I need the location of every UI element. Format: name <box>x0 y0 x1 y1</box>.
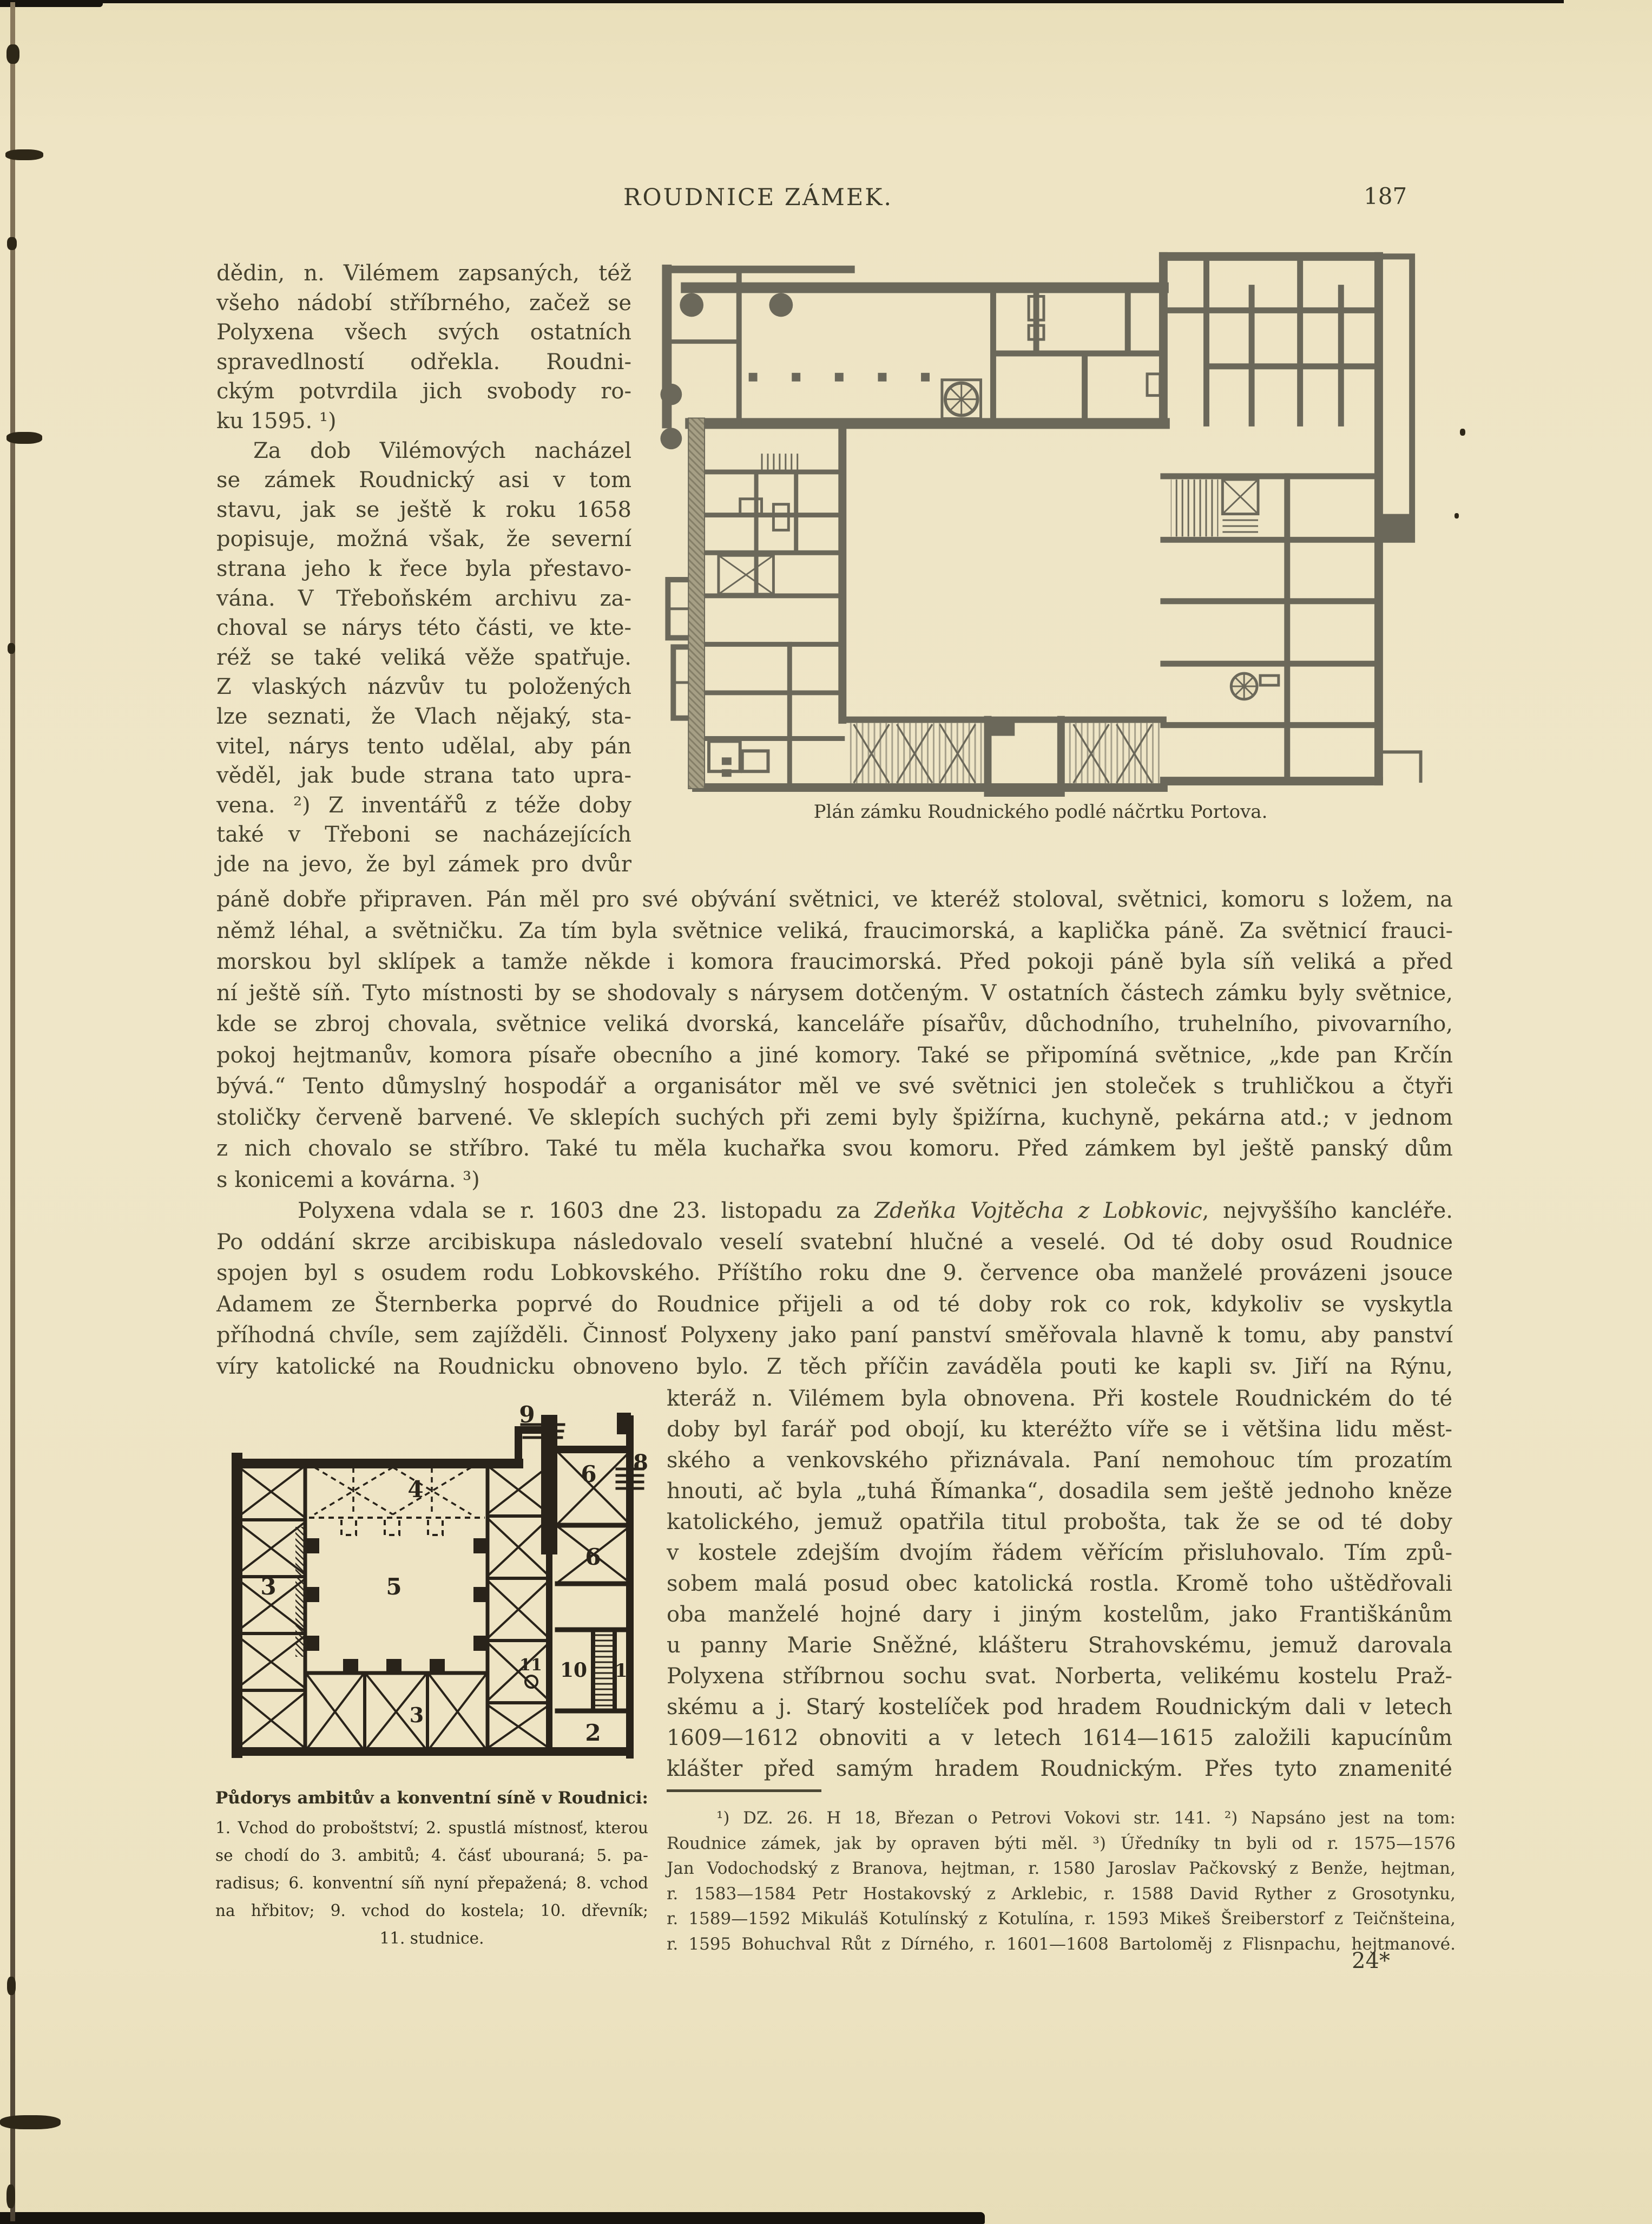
binding-mark <box>8 643 15 654</box>
text-line: Po oddání skrze arcibiskupa následovalo … <box>216 1227 1453 1258</box>
binding-mark <box>6 2184 15 2208</box>
legend-line: na hřbitov; 9. vchod do kostela; 10. dře… <box>215 1897 648 1925</box>
room-number-label: 5 <box>386 1573 402 1600</box>
room-number-label: 1 <box>615 1660 628 1682</box>
main-text-block: páně dobře připraven. Pán měl pro své ob… <box>216 884 1453 1382</box>
room-number-label: 11 <box>519 1656 542 1675</box>
text-line: ského a venkovského přiznávala. Paní nem… <box>667 1445 1452 1476</box>
text-line: kteráž n. Vilémem byla obnovena. Při kos… <box>667 1383 1452 1414</box>
text-line: Polyxena stříbrnou sochu svat. Norberta,… <box>667 1661 1452 1692</box>
text-line: víry katolické na Roudnicku obnoveno byl… <box>216 1352 1453 1383</box>
text-line: spojen byl s osudem rodu Lobkovského. Př… <box>216 1258 1453 1289</box>
page-edge-bottom <box>0 2212 985 2224</box>
text-line: doby byl farář pod obojí, ku kteréžto ví… <box>667 1414 1452 1445</box>
text-line: bývá.“ Tento důmyslný hospodář a organis… <box>216 1071 1453 1103</box>
text-line: réž se také veliká věže spatřuje. <box>216 643 631 673</box>
text-line: jde na jevo, že byl zámek pro dvůr <box>216 850 631 880</box>
footnote-line: Jan Vodochodský z Branova, hejtman, r. 1… <box>667 1856 1456 1881</box>
text-line: popisuje, možná však, že severní <box>216 524 631 554</box>
plan-walls <box>667 257 1420 795</box>
legend-line: se chodí do 3. ambitů; 4. čásť ubouraná;… <box>215 1842 648 1869</box>
page-number: 187 <box>1364 183 1407 209</box>
room-number-label: 4 <box>407 1476 423 1503</box>
left-text-column: dědin, n. Vilémem zapsaných, téžvšeho ná… <box>216 259 631 879</box>
text-line: ní ještě síň. Tyto místnosti by se shodo… <box>216 978 1453 1009</box>
text-line: příhodná chvíle, sem zajížděli. Činnosť … <box>216 1320 1453 1352</box>
castle-plan-drawing <box>656 245 1425 797</box>
text-line: ckým potvrdila jich svobody ro- <box>216 377 631 406</box>
footnote-line: ¹) DZ. 26. H 18, Březan o Petrovi Vokovi… <box>667 1806 1456 1831</box>
demolished-part-dashed <box>309 1467 485 1535</box>
text-line: Polyxena všech svých ostatních <box>216 318 631 347</box>
text-line: Za dob Vilémových nacházel <box>216 436 631 466</box>
text-line: stoličky červeně barvené. Ve sklepích su… <box>216 1103 1453 1134</box>
top-plan-caption: Plán zámku Roudnického podlé náčrtku Por… <box>656 801 1425 823</box>
binding-mark <box>6 432 42 444</box>
room-number-label: 9 <box>519 1401 535 1428</box>
text-line-wedding: Polyxena vdala se r. 1603 dne 23. listop… <box>216 1196 1453 1227</box>
cloister-plan-drawing: 9 4 6 8 6 3 5 10 11 1 3 2 <box>214 1400 647 1768</box>
cloister-hatching <box>295 1527 614 1710</box>
binding-gutter-line <box>10 2 15 2221</box>
text-line: katolického, jemuž opatřila titul proboš… <box>667 1507 1452 1538</box>
ink-speck <box>1460 429 1465 436</box>
text-line: kde se zbroj chovala, světnice veliká dv… <box>216 1009 1453 1040</box>
room-number-label: 3 <box>410 1703 424 1727</box>
wedding-line-post: , nejvyššího kancléře. <box>1202 1198 1453 1223</box>
text-line: pokoj hejtmanův, komora písaře obecního … <box>216 1040 1453 1072</box>
text-line: v kostele zdejším dvojím řádem věřícím p… <box>667 1538 1452 1569</box>
binding-mark <box>5 149 43 160</box>
sheet-signature: 24* <box>1352 1949 1390 1973</box>
page-edge-top-corner <box>0 0 103 7</box>
text-line: věděl, jak bude strana tato upra- <box>216 761 631 791</box>
footnote-line: Roudnice zámek, jak by opraven býti měl.… <box>667 1831 1456 1856</box>
text-line: vena. ²) Z inventářů z téže doby <box>216 791 631 821</box>
text-line: sobem malá posud obec katolická rostla. … <box>667 1569 1452 1599</box>
bottom-plan-legend: 1. Vchod do proboštství; 2. spustlá míst… <box>215 1814 648 1952</box>
paragraph-continuation: páně dobře připraven. Pán měl pro své ob… <box>216 884 1453 1196</box>
room-number-label: 2 <box>585 1720 601 1746</box>
footnote-line: r. 1589—1592 Mikuláš Kotulínský z Kotulí… <box>667 1906 1456 1932</box>
room-number-label: 3 <box>260 1573 276 1600</box>
footnote-separator-rule <box>667 1789 821 1792</box>
text-line: Z vlaských názvův tu položených <box>216 672 631 702</box>
scanned-book-page: { "header": { "title": "ROUDNICE ZÁMEK."… <box>0 0 1652 2224</box>
text-line: se zámek Roudnický asi v tom <box>216 465 631 495</box>
text-line: také v Třeboni se nacházejících <box>216 820 631 850</box>
castle-plan-figure <box>656 245 1425 799</box>
room-number-label: 6 <box>581 1461 596 1487</box>
binding-mark <box>7 1977 16 1995</box>
text-line: páně dobře připraven. Pán měl pro své ob… <box>216 884 1453 916</box>
running-header-title: ROUDNICE ZÁMEK. <box>623 184 893 211</box>
text-line: dědin, n. Vilémem zapsaných, též <box>216 259 631 288</box>
right-text-column: kteráž n. Vilémem byla obnovena. Při kos… <box>667 1383 1452 1785</box>
text-line: vána. V Třeboňském archivu za- <box>216 584 631 614</box>
text-line: choval se nárys této části, ve kte- <box>216 613 631 643</box>
text-line: klášter před samým hradem Roudnickým. Př… <box>667 1754 1452 1785</box>
footnote-line: r. 1595 Bohuchval Růt z Dírného, r. 1601… <box>667 1932 1456 1957</box>
text-line: lze seznati, že Vlach nějaký, sta- <box>216 702 631 732</box>
text-line: vitel, nárys tento udělal, aby pán <box>216 732 631 762</box>
wedding-line-pre: Polyxena vdala se r. 1603 dne 23. listop… <box>298 1198 874 1223</box>
text-line: 1609—1612 obnoviti a v letech 1614—1615 … <box>667 1723 1452 1754</box>
text-line: strana jeho k řece byla přestavo- <box>216 554 631 584</box>
text-line: u panny Marie Sněžné, klášteru Strahovsk… <box>667 1630 1452 1661</box>
wedding-line-italic-names: Zdeňka Vojtěcha z Lobkovic <box>874 1198 1202 1223</box>
text-line: oba manželé hojné dary i jiným kostelům,… <box>667 1599 1452 1630</box>
page-edge-top <box>0 0 1564 3</box>
text-line: Adamem ze Šternberka poprvé do Roudnice … <box>216 1289 1453 1321</box>
cloister-plan-figure: 9 4 6 8 6 3 5 10 11 1 3 2 <box>214 1400 647 1770</box>
legend-line: 1. Vchod do proboštství; 2. spustlá míst… <box>215 1814 648 1842</box>
text-line: z nich chovalo se stříbro. Také tu měla … <box>216 1133 1453 1165</box>
legend-line: 11. studnice. <box>215 1925 648 1952</box>
text-line: ku 1595. ¹) <box>216 406 631 436</box>
bottom-plan-caption-title: Půdorys ambitův a konventní síně v Roudn… <box>215 1782 648 1814</box>
binding-mark <box>0 2115 61 2129</box>
text-line: stavu, jak se ještě k roku 1658 <box>216 495 631 525</box>
footnote-line: r. 1583—1584 Petr Hostakovský z Arklebic… <box>667 1881 1456 1907</box>
text-line: hnouti, ač byla „tuhá Římanka“, dosadila… <box>667 1476 1452 1507</box>
legend-line: radisus; 6. konventní síň nyní přepažená… <box>215 1869 648 1897</box>
ink-speck <box>1454 513 1459 519</box>
bottom-plan-caption: Půdorys ambitův a konventní síně v Roudn… <box>215 1782 648 1952</box>
text-line: skému a j. Starý kostelíček pod hradem R… <box>667 1692 1452 1723</box>
text-line: všeho nádobí stříbrného, začež se <box>216 288 631 318</box>
room-number-label: 8 <box>633 1450 647 1475</box>
text-line: němž léhal, a světničku. Za tím byla svě… <box>216 916 1453 947</box>
text-line: s konicemi a kovárna. ³) <box>216 1165 1453 1196</box>
paragraph-two: Po oddání skrze arcibiskupa následovalo … <box>216 1227 1453 1383</box>
binding-mark <box>7 237 17 250</box>
text-line: morskou byl sklípek a tamže někde i komo… <box>216 947 1453 978</box>
binding-mark <box>6 44 19 64</box>
footnotes-block: ¹) DZ. 26. H 18, Březan o Petrovi Vokovi… <box>667 1806 1456 1957</box>
room-number-label: 10 <box>560 1659 587 1682</box>
text-line: spravedlností odřekla. Roudni- <box>216 347 631 377</box>
room-number-label: 6 <box>585 1544 601 1570</box>
